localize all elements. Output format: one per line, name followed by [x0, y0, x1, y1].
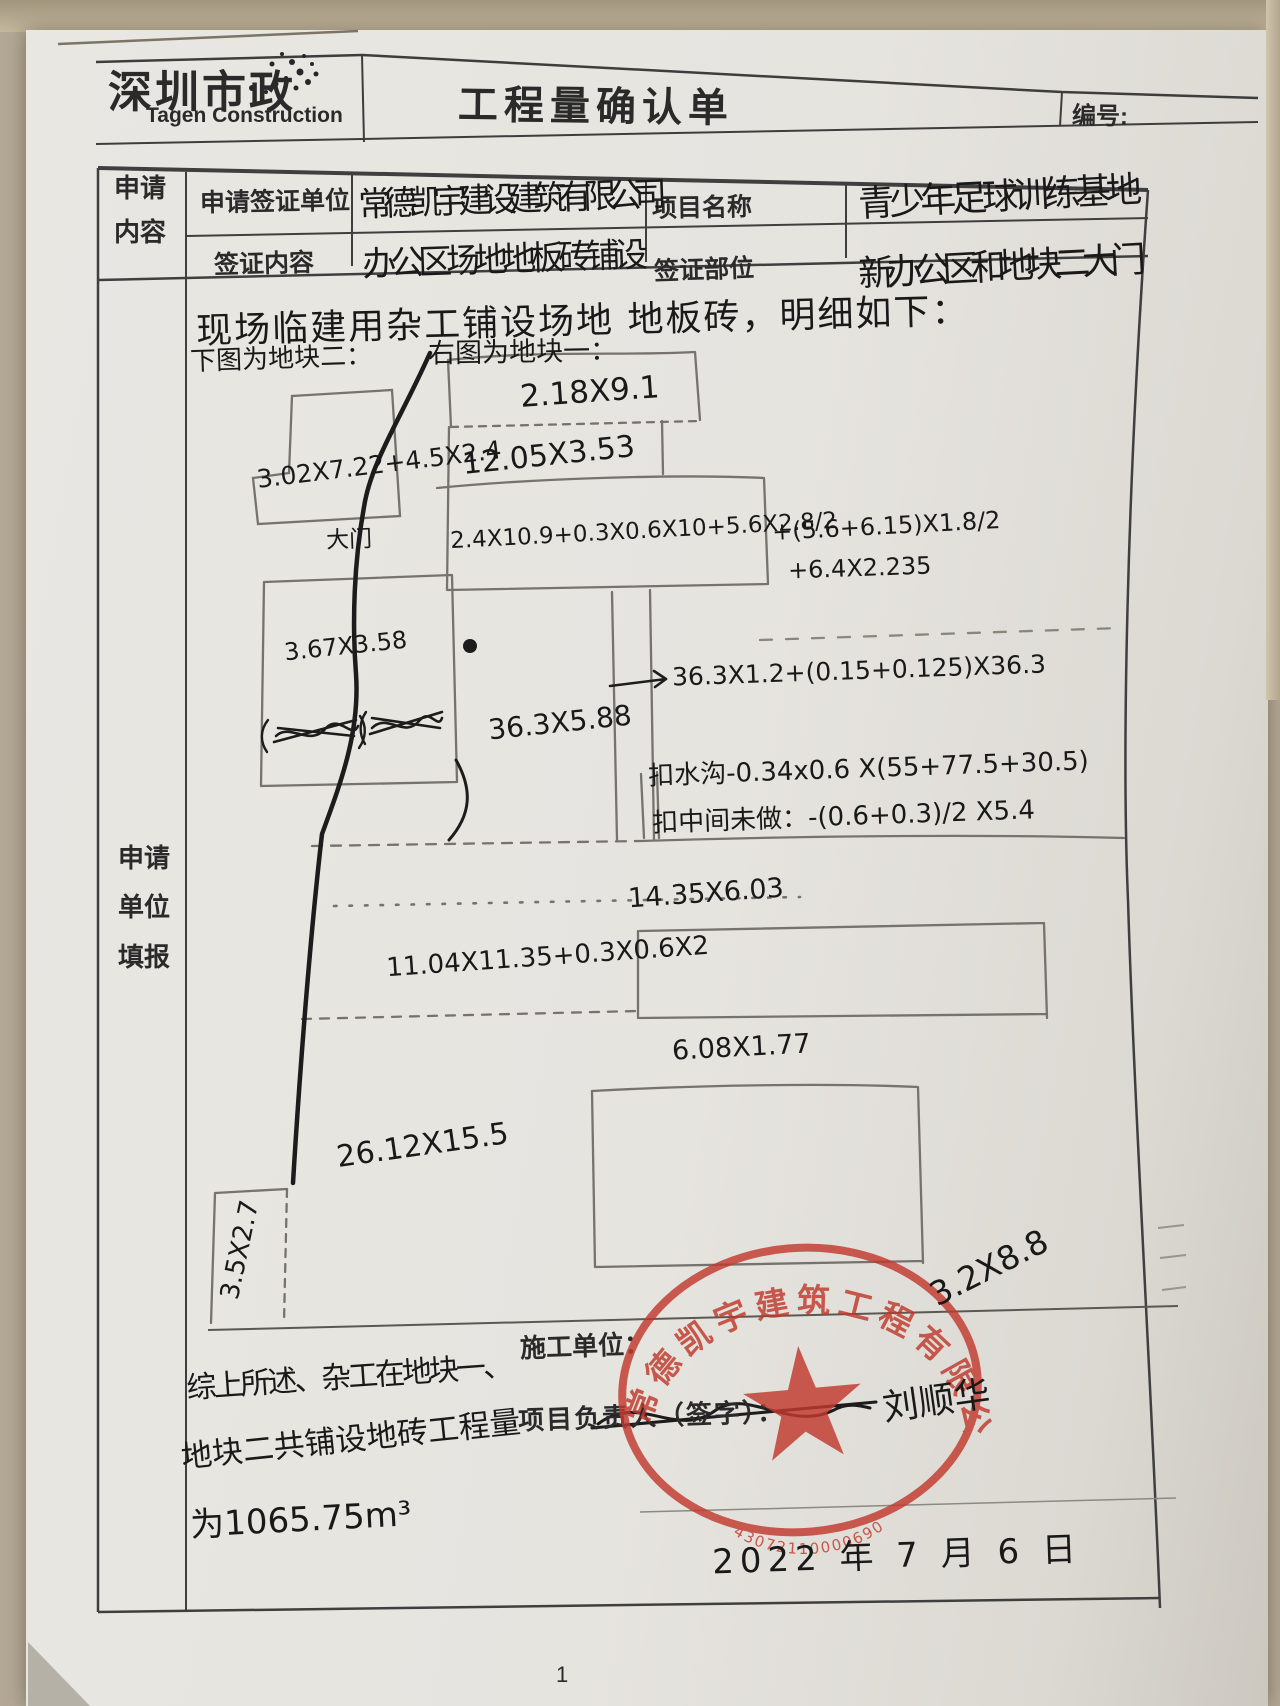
- section-label-applicant-fill: 申请单位填报: [116, 834, 172, 982]
- form-title: 工程量确认单: [458, 72, 735, 134]
- note-block2: 下图为地块二：: [189, 335, 372, 378]
- gate-label: 大门: [325, 519, 372, 555]
- label-contractor: 施工单位：: [519, 1324, 650, 1366]
- label-visa-content: 签证内容: [214, 243, 315, 282]
- logo-text-en: Tagen Construction: [146, 104, 343, 128]
- label-project-name: 项目名称: [652, 187, 753, 225]
- scan-desk-edge: [0, 0, 1280, 32]
- doc-no-label: 编号:: [1072, 96, 1129, 132]
- page-number: 1: [556, 1662, 568, 1688]
- value-apply-unit: 常德凯宇建设建筑有限公司: [357, 167, 659, 226]
- section-label-apply-content: 申请内容: [112, 166, 168, 254]
- note-block1: 右图为地块一：: [428, 328, 618, 370]
- label-visa-part: 签证部位: [653, 248, 754, 287]
- value-visa-content: 办公区场地地板砖铺设: [361, 227, 643, 286]
- dim-label: +6.4X2.235: [788, 552, 932, 585]
- scan-desk-edge-right: [1266, 0, 1280, 700]
- label-apply-unit: 申请签证单位: [200, 181, 351, 220]
